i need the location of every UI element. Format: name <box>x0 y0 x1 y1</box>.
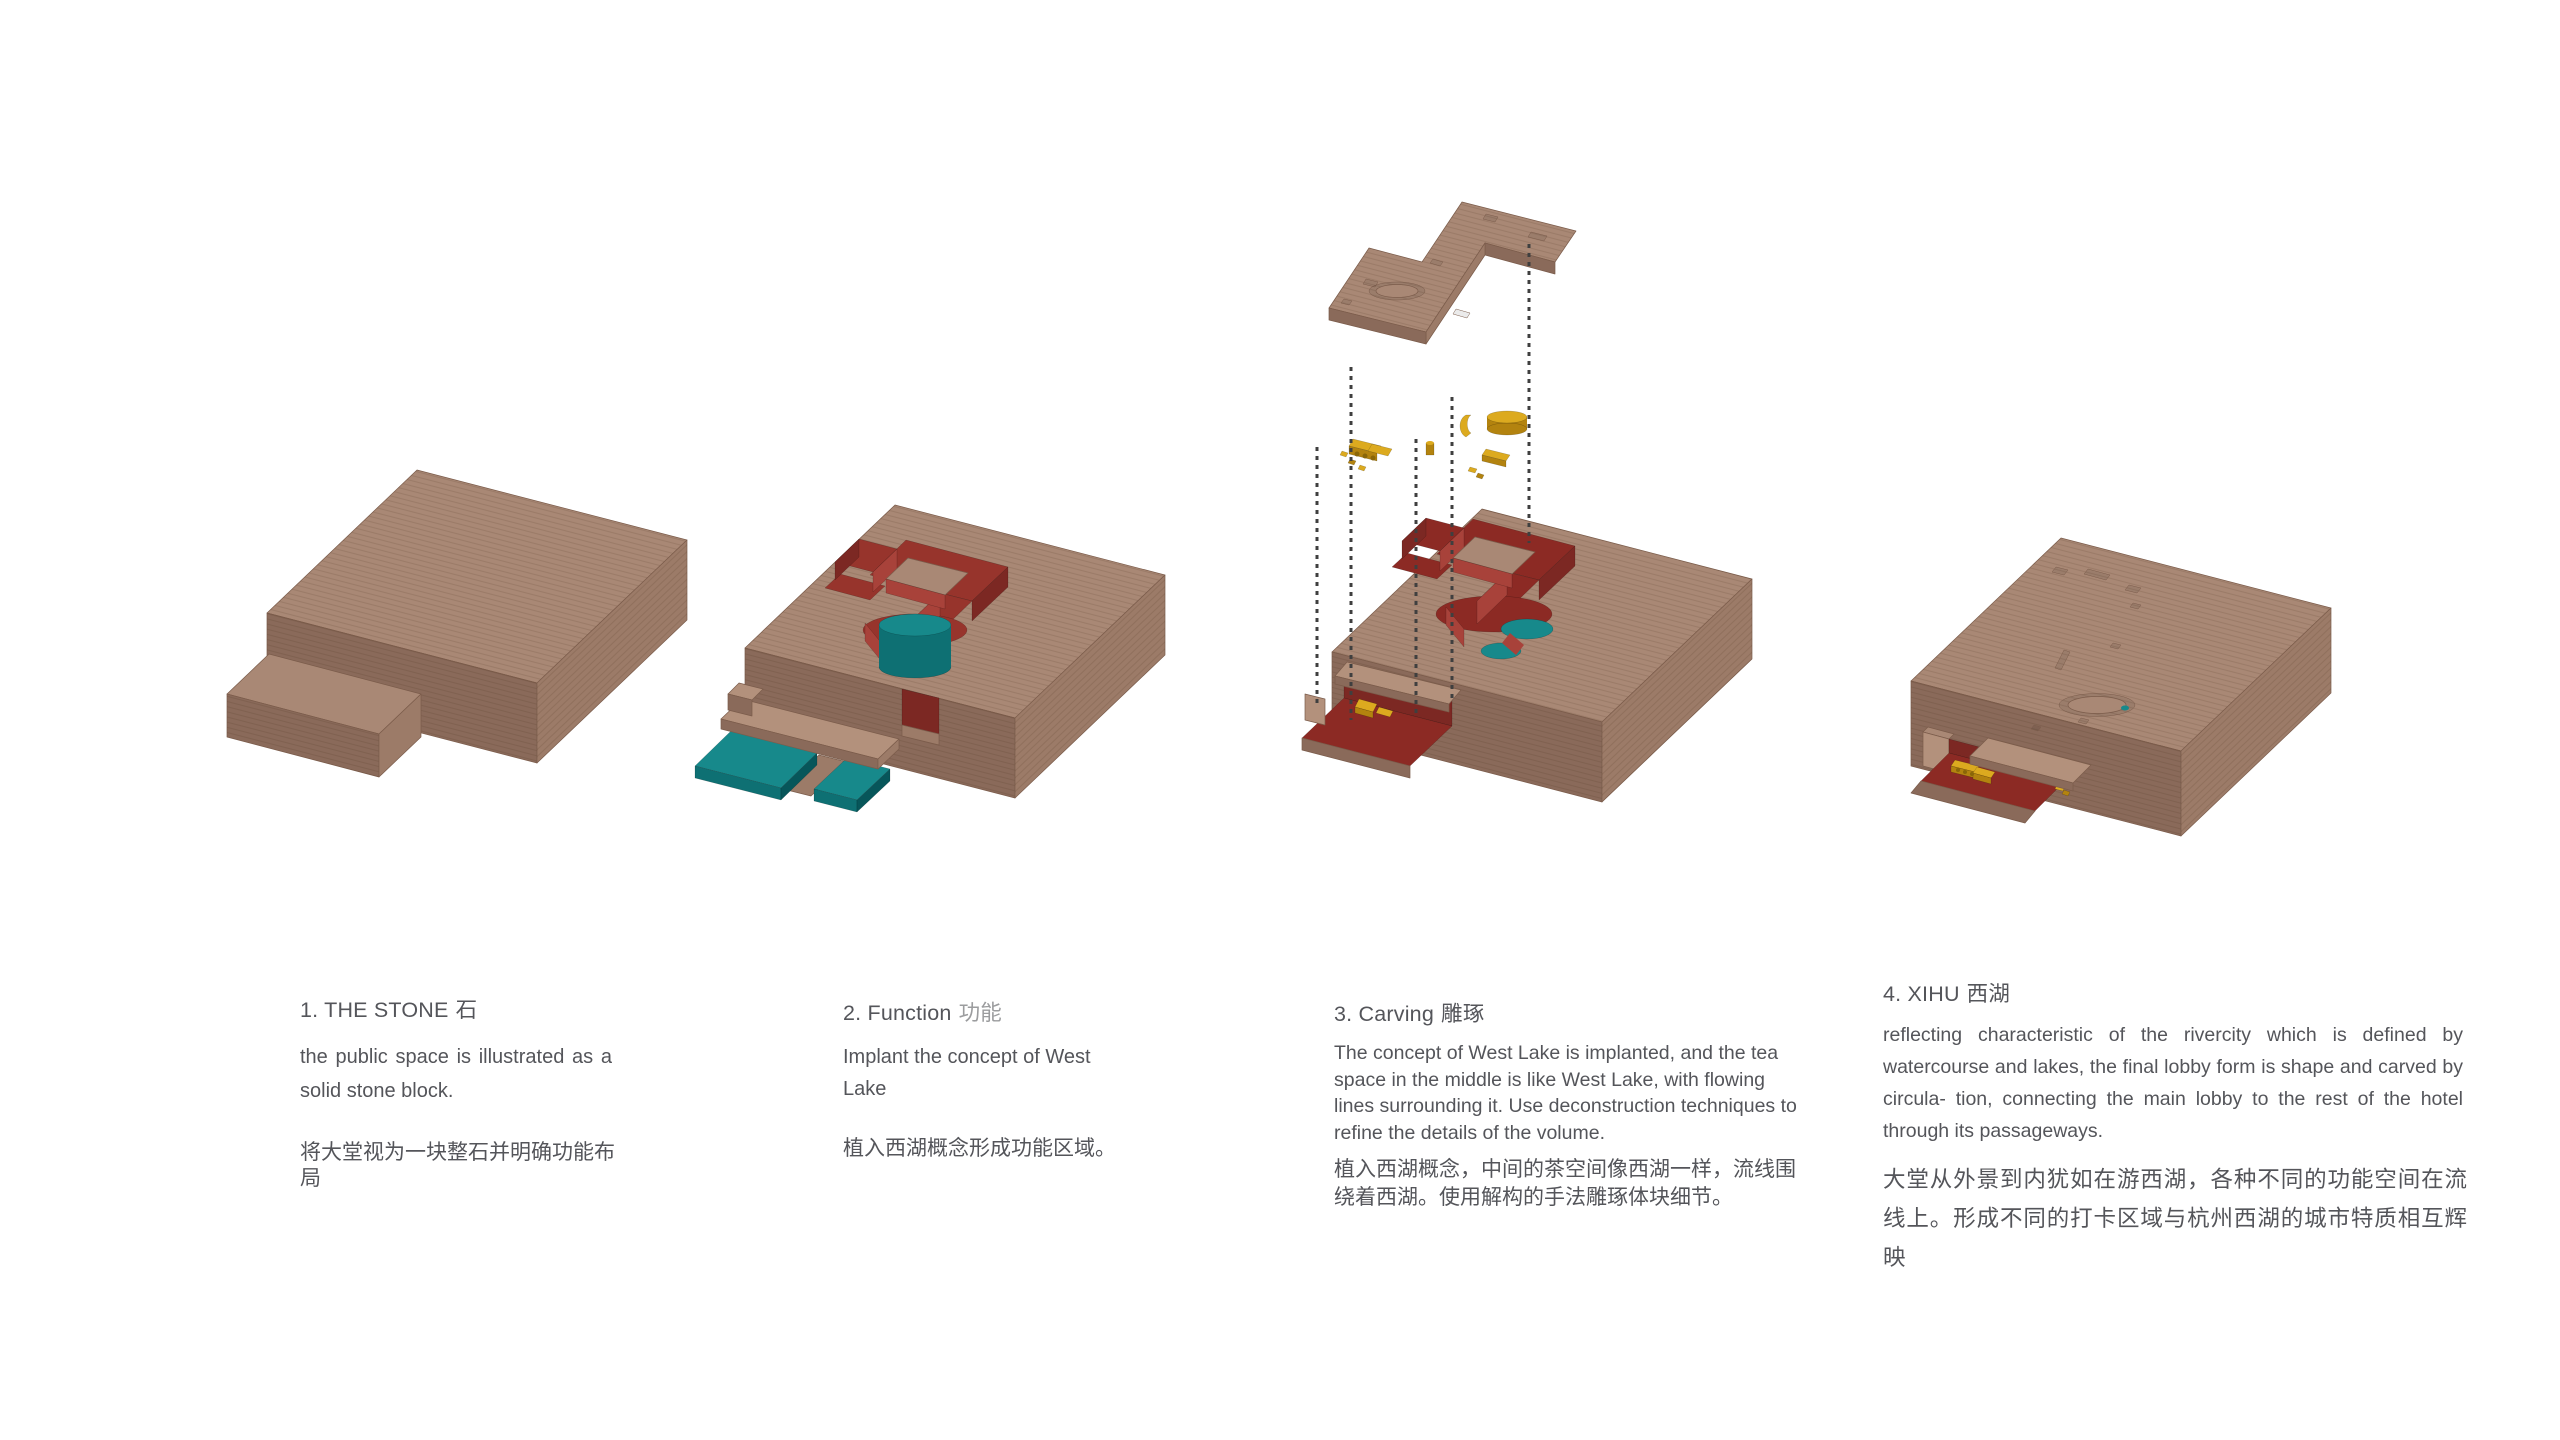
caption-label-cjk: 功能 <box>959 1001 1002 1025</box>
caption-stage4: 4. XIHU西湖 reflecting characteristic of t… <box>1883 977 2473 1277</box>
caption-label: 4. XIHU <box>1883 982 1960 1006</box>
tea-cylinder <box>879 614 951 678</box>
caption-label: 3. Carving <box>1334 1002 1434 1026</box>
caption-label-cjk: 雕琢 <box>1441 1002 1484 1026</box>
caption-title: 2. Function功能 <box>843 996 1203 1027</box>
caption-label-cjk: 石 <box>456 998 478 1022</box>
caption-stage1: 1. THE STONE石 the public space is illust… <box>300 993 680 1191</box>
teal-sliver <box>2121 706 2129 711</box>
caption-text-en: Implant the concept of West Lake <box>843 1041 1115 1105</box>
caption-text-en: the public space is illustrated as a sol… <box>300 1040 612 1108</box>
caption-title: 4. XIHU西湖 <box>1883 977 2473 1008</box>
caption-stage2: 2. Function功能 Implant the concept of Wes… <box>843 996 1203 1162</box>
caption-text-zh: 植入西湖概念形成功能区域。 <box>843 1135 1183 1162</box>
concept-diagram-board: 1. THE STONE石 the public space is illust… <box>0 0 2560 1440</box>
gold-arc <box>1460 415 1471 437</box>
caption-label-cjk: 西湖 <box>1967 982 2010 1006</box>
face-notch <box>902 689 939 745</box>
figure-stage4-xihu <box>1773 520 2333 920</box>
figure-stage1-stone <box>129 452 689 852</box>
circle-engraving <box>2059 694 2135 717</box>
gold-furniture-cluster <box>1340 411 1527 479</box>
court-wall <box>1305 694 1325 725</box>
figure-stage2-function <box>607 487 1167 887</box>
caption-text-zh: 将大堂视为一块整石并明确功能布局 <box>300 1140 622 1191</box>
roof-plate <box>1329 202 1576 344</box>
caption-text-zh: 大堂从外景到内犹如在游西湖，各种不同的功能空间在流线上。形成不同的打卡区域与杭州… <box>1883 1160 2467 1277</box>
figure-stage3-carving <box>1194 159 1754 899</box>
caption-label: 2. Function <box>843 1001 952 1025</box>
caption-label: 1. THE STONE <box>300 998 449 1022</box>
caption-title: 1. THE STONE石 <box>300 993 680 1024</box>
caption-stage3: 3. Carving雕琢 The concept of West Lake is… <box>1334 997 1824 1212</box>
gold-disc <box>1487 411 1527 423</box>
caption-title: 3. Carving雕琢 <box>1334 997 1824 1028</box>
caption-text-en: reflecting characteristic of the riverci… <box>1883 1020 2463 1148</box>
caption-text-zh: 植入西湖概念，中间的茶空间像西湖一样，流线围绕着西湖。使用解构的手法雕琢体块细节… <box>1334 1156 1802 1211</box>
caption-text-en: The concept of West Lake is implanted, a… <box>1334 1040 1808 1146</box>
